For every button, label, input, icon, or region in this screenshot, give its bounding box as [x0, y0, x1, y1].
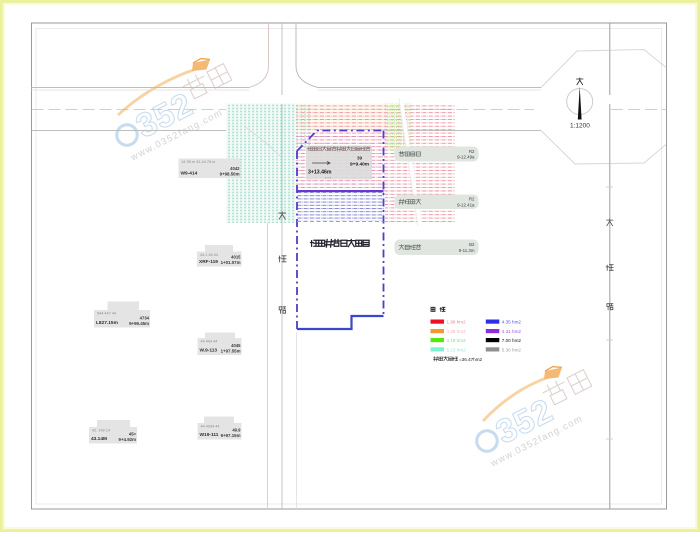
svg-text:B2: B2	[469, 242, 475, 247]
svg-text:7.00 hm2: 7.00 hm2	[502, 338, 522, 343]
svg-text:4734: 4734	[140, 316, 150, 321]
svg-text:1+97.55m: 1+97.55m	[221, 349, 241, 354]
svg-text:4.35 hm2: 4.35 hm2	[502, 320, 522, 325]
svg-text:R2: R2	[469, 149, 475, 154]
svg-text:4045: 4045	[231, 343, 241, 348]
svg-text:W.9-113: W.9-113	[200, 348, 218, 354]
svg-text:42. 149 14: 42. 149 14	[92, 429, 110, 433]
svg-text:4.31 hm2: 4.31 hm2	[502, 329, 522, 334]
svg-text:43.14M: 43.14M	[91, 436, 107, 442]
svg-text:9-12.49a: 9-12.49a	[457, 155, 475, 160]
svg-text:W9-414: W9-414	[181, 171, 198, 177]
svg-text:R2: R2	[469, 197, 475, 202]
svg-text:3.19 hm2: 3.19 hm2	[447, 338, 467, 343]
svg-text:1+01.07m: 1+01.07m	[221, 260, 241, 265]
svg-text:44 4934 44: 44 4934 44	[201, 425, 220, 429]
svg-text:544 447 44: 544 447 44	[97, 312, 116, 316]
svg-text:9-12.41a: 9-12.41a	[457, 202, 475, 207]
svg-text:3+13.46m: 3+13.46m	[308, 170, 332, 176]
svg-text:9+9.40m: 9+9.40m	[350, 162, 369, 168]
svg-text:=36.47hm2: =36.47hm2	[459, 357, 483, 362]
svg-text:W19-111: W19-111	[200, 432, 219, 438]
svg-text:9+97.15m: 9+97.15m	[221, 433, 241, 438]
svg-text:* * *: * * *	[325, 177, 332, 181]
svg-text:9-11.3m: 9-11.3m	[459, 248, 475, 253]
svg-text:49.9: 49.9	[232, 428, 241, 433]
svg-text:44.1 44.04: 44.1 44.04	[200, 253, 218, 257]
svg-text:9+99.45m: 9+99.45m	[129, 321, 149, 326]
svg-text:45>: 45>	[129, 432, 137, 437]
svg-text:9+4.92m: 9+4.92m	[119, 437, 137, 442]
svg-text:4042: 4042	[230, 166, 240, 171]
svg-text:9+98.50m: 9+98.50m	[220, 172, 240, 177]
svg-text:1.98 hm2: 1.98 hm2	[447, 320, 467, 325]
svg-text:5.13 hm2: 5.13 hm2	[447, 348, 467, 353]
svg-text:5.36 hm2: 5.36 hm2	[502, 348, 522, 353]
svg-text:39: 39	[357, 156, 363, 161]
svg-text:L827.15m: L827.15m	[96, 320, 118, 326]
svg-text:4.39 hm2: 4.39 hm2	[447, 329, 467, 334]
svg-text:44 443 44: 44 443 44	[201, 340, 218, 344]
svg-text:4015: 4015	[231, 255, 241, 260]
svg-text:1:1200: 1:1200	[570, 123, 590, 130]
svg-text:41.99 m 41.44.78 m: 41.99 m 41.44.78 m	[182, 160, 216, 164]
svg-text:XRF-119: XRF-119	[199, 259, 218, 265]
